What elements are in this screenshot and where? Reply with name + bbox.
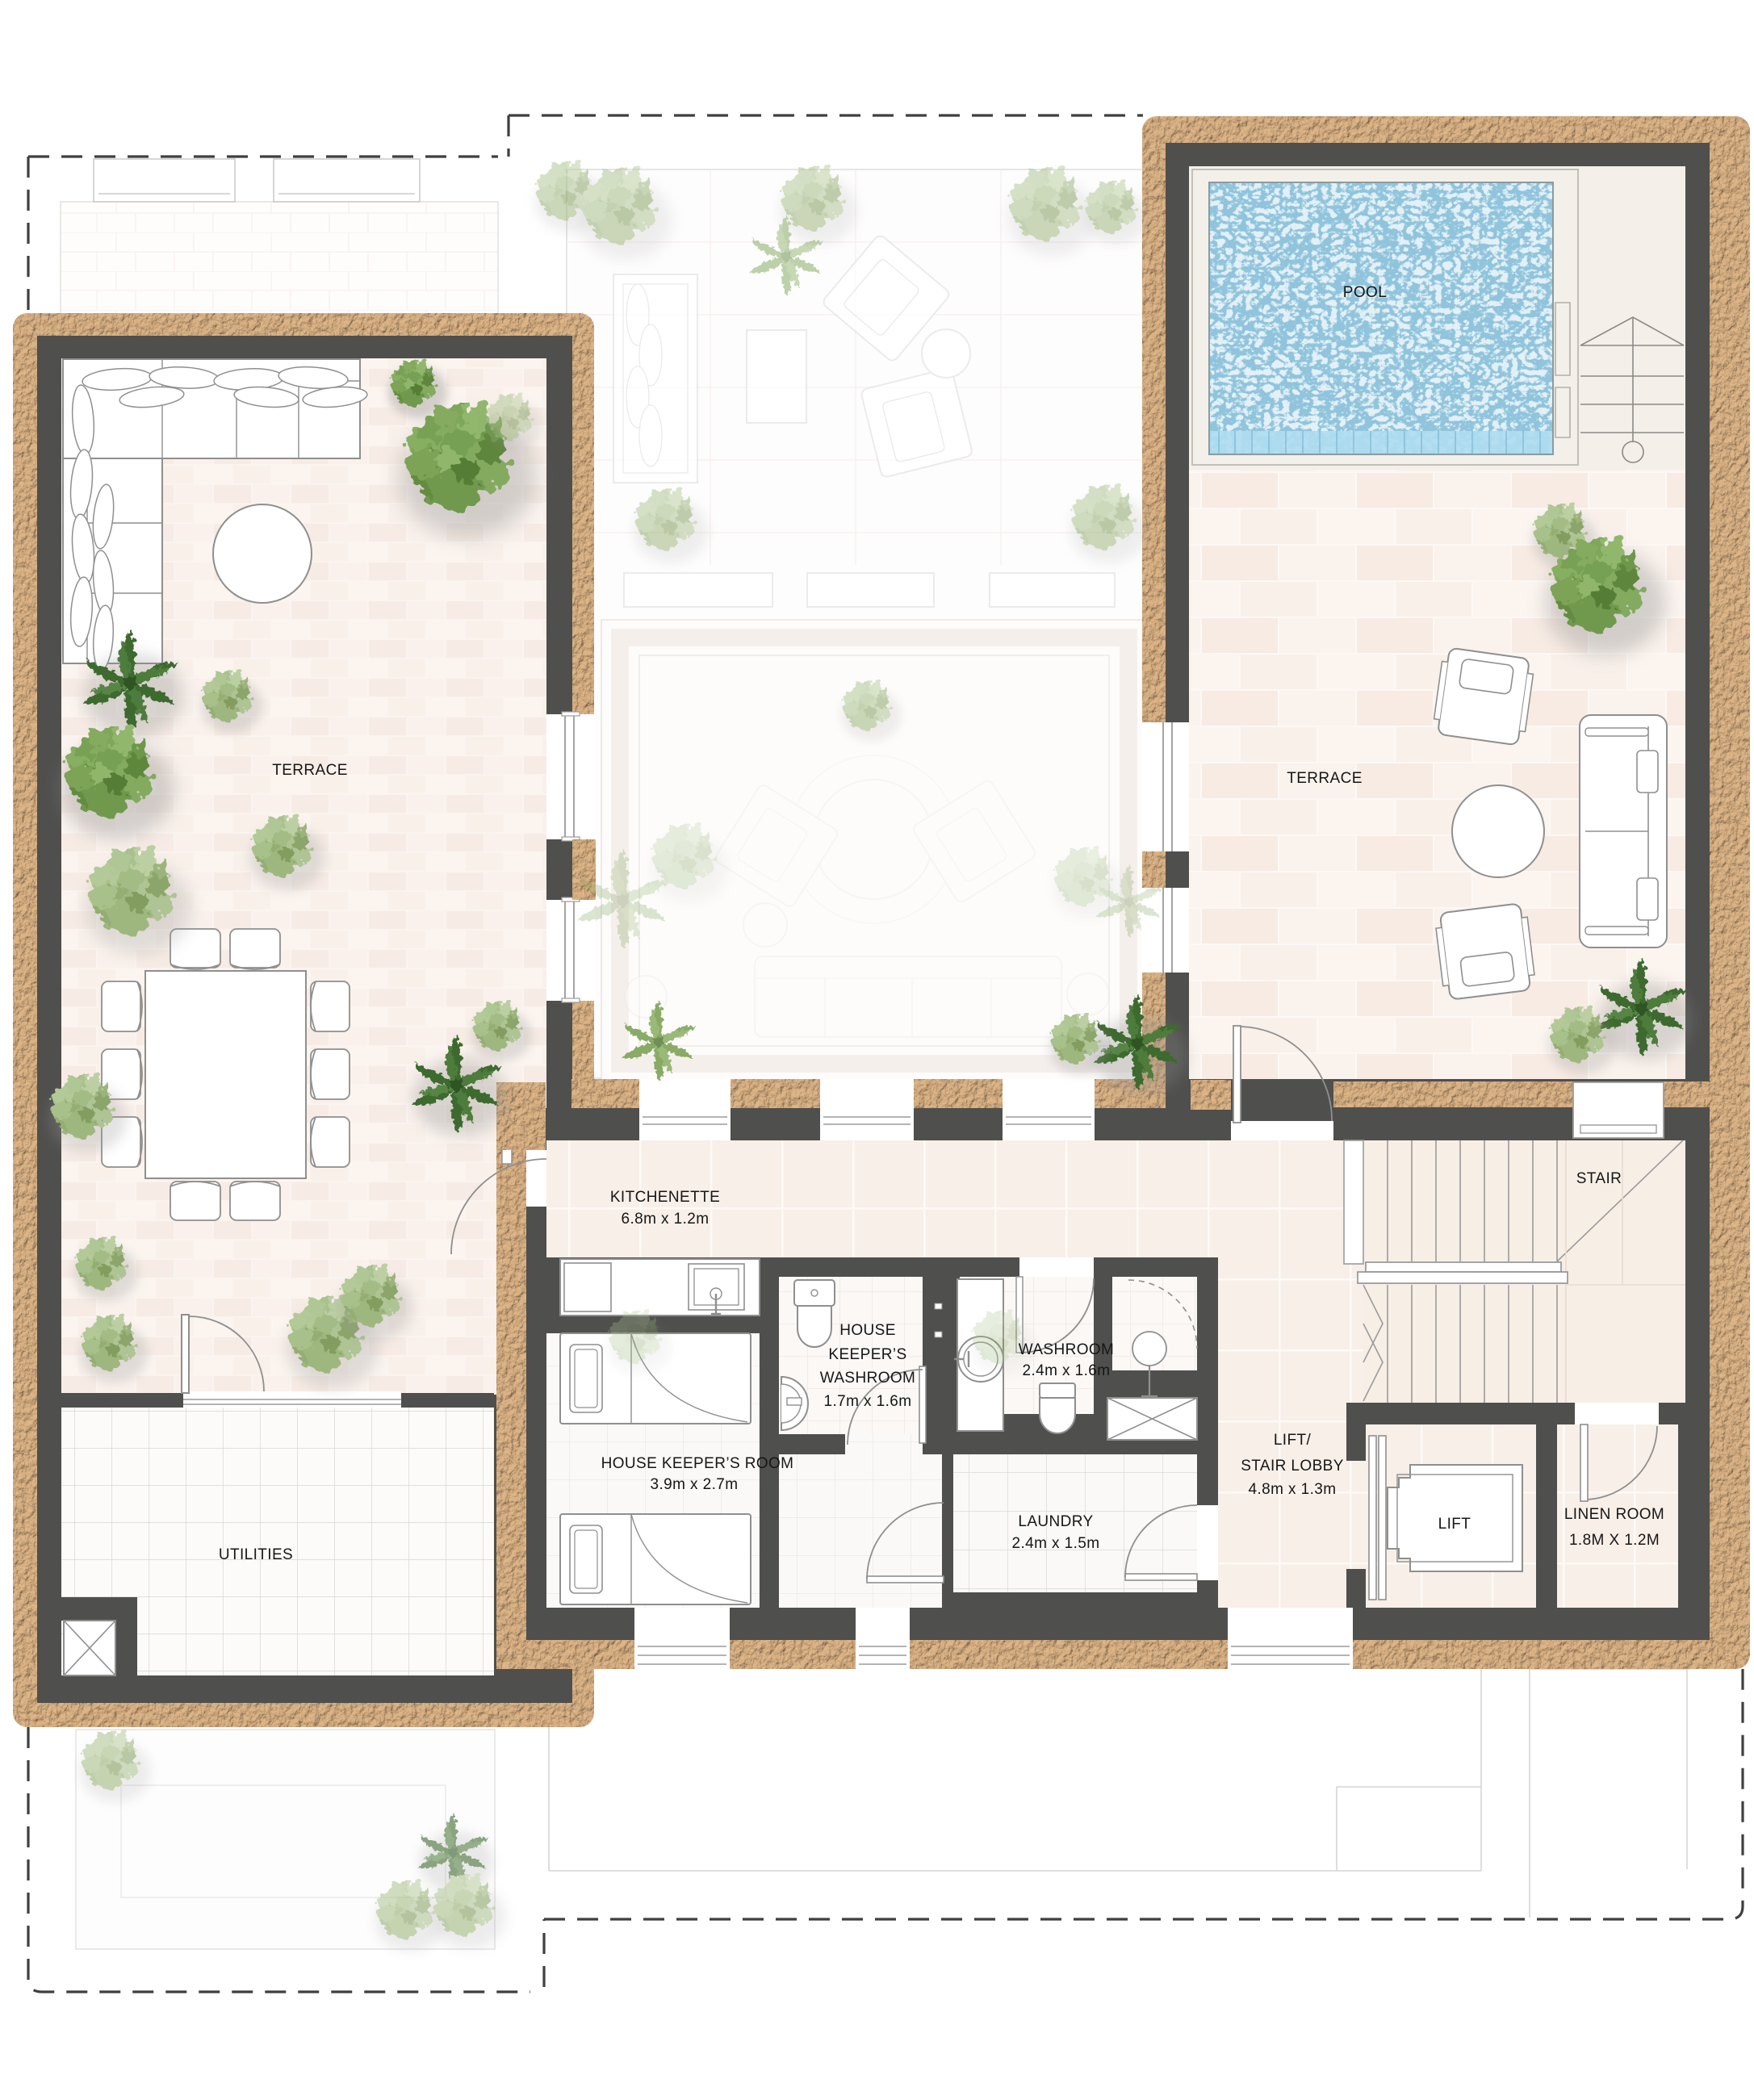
svg-text:WASHROOM: WASHROOM [1019, 1341, 1115, 1358]
svg-text:1.7m x 1.6m: 1.7m x 1.6m [824, 1393, 912, 1410]
svg-text:LAUNDRY: LAUNDRY [1018, 1513, 1093, 1530]
svg-text:KITCHENETTE: KITCHENETTE [610, 1189, 720, 1206]
svg-text:KEEPER’S: KEEPER’S [828, 1346, 906, 1363]
svg-text:HOUSE KEEPER’S ROOM: HOUSE KEEPER’S ROOM [601, 1455, 794, 1472]
svg-text:STAIR LOBBY: STAIR LOBBY [1241, 1458, 1344, 1475]
svg-text:LIFT: LIFT [1438, 1516, 1471, 1533]
svg-text:2.4m x 1.6m: 2.4m x 1.6m [1023, 1362, 1111, 1379]
svg-text:6.8m x 1.2m: 6.8m x 1.2m [622, 1211, 710, 1228]
svg-text:WASHROOM: WASHROOM [820, 1370, 916, 1387]
svg-text:HOUSE: HOUSE [839, 1322, 896, 1339]
svg-text:TERRACE: TERRACE [272, 762, 348, 779]
svg-text:TERRACE: TERRACE [1287, 770, 1363, 787]
svg-text:LINEN ROOM: LINEN ROOM [1564, 1506, 1664, 1523]
svg-text:1.8M X 1.2M: 1.8M X 1.2M [1569, 1532, 1660, 1549]
svg-text:4.8m x 1.3m: 4.8m x 1.3m [1249, 1481, 1337, 1498]
svg-text:POOL: POOL [1343, 284, 1387, 301]
svg-text:UTILITIES: UTILITIES [219, 1546, 293, 1563]
svg-text:2.4m x 1.5m: 2.4m x 1.5m [1012, 1535, 1100, 1552]
svg-text:3.9m x 2.7m: 3.9m x 2.7m [651, 1476, 739, 1493]
svg-text:LIFT/: LIFT/ [1274, 1432, 1312, 1449]
svg-text:STAIR: STAIR [1576, 1170, 1622, 1187]
